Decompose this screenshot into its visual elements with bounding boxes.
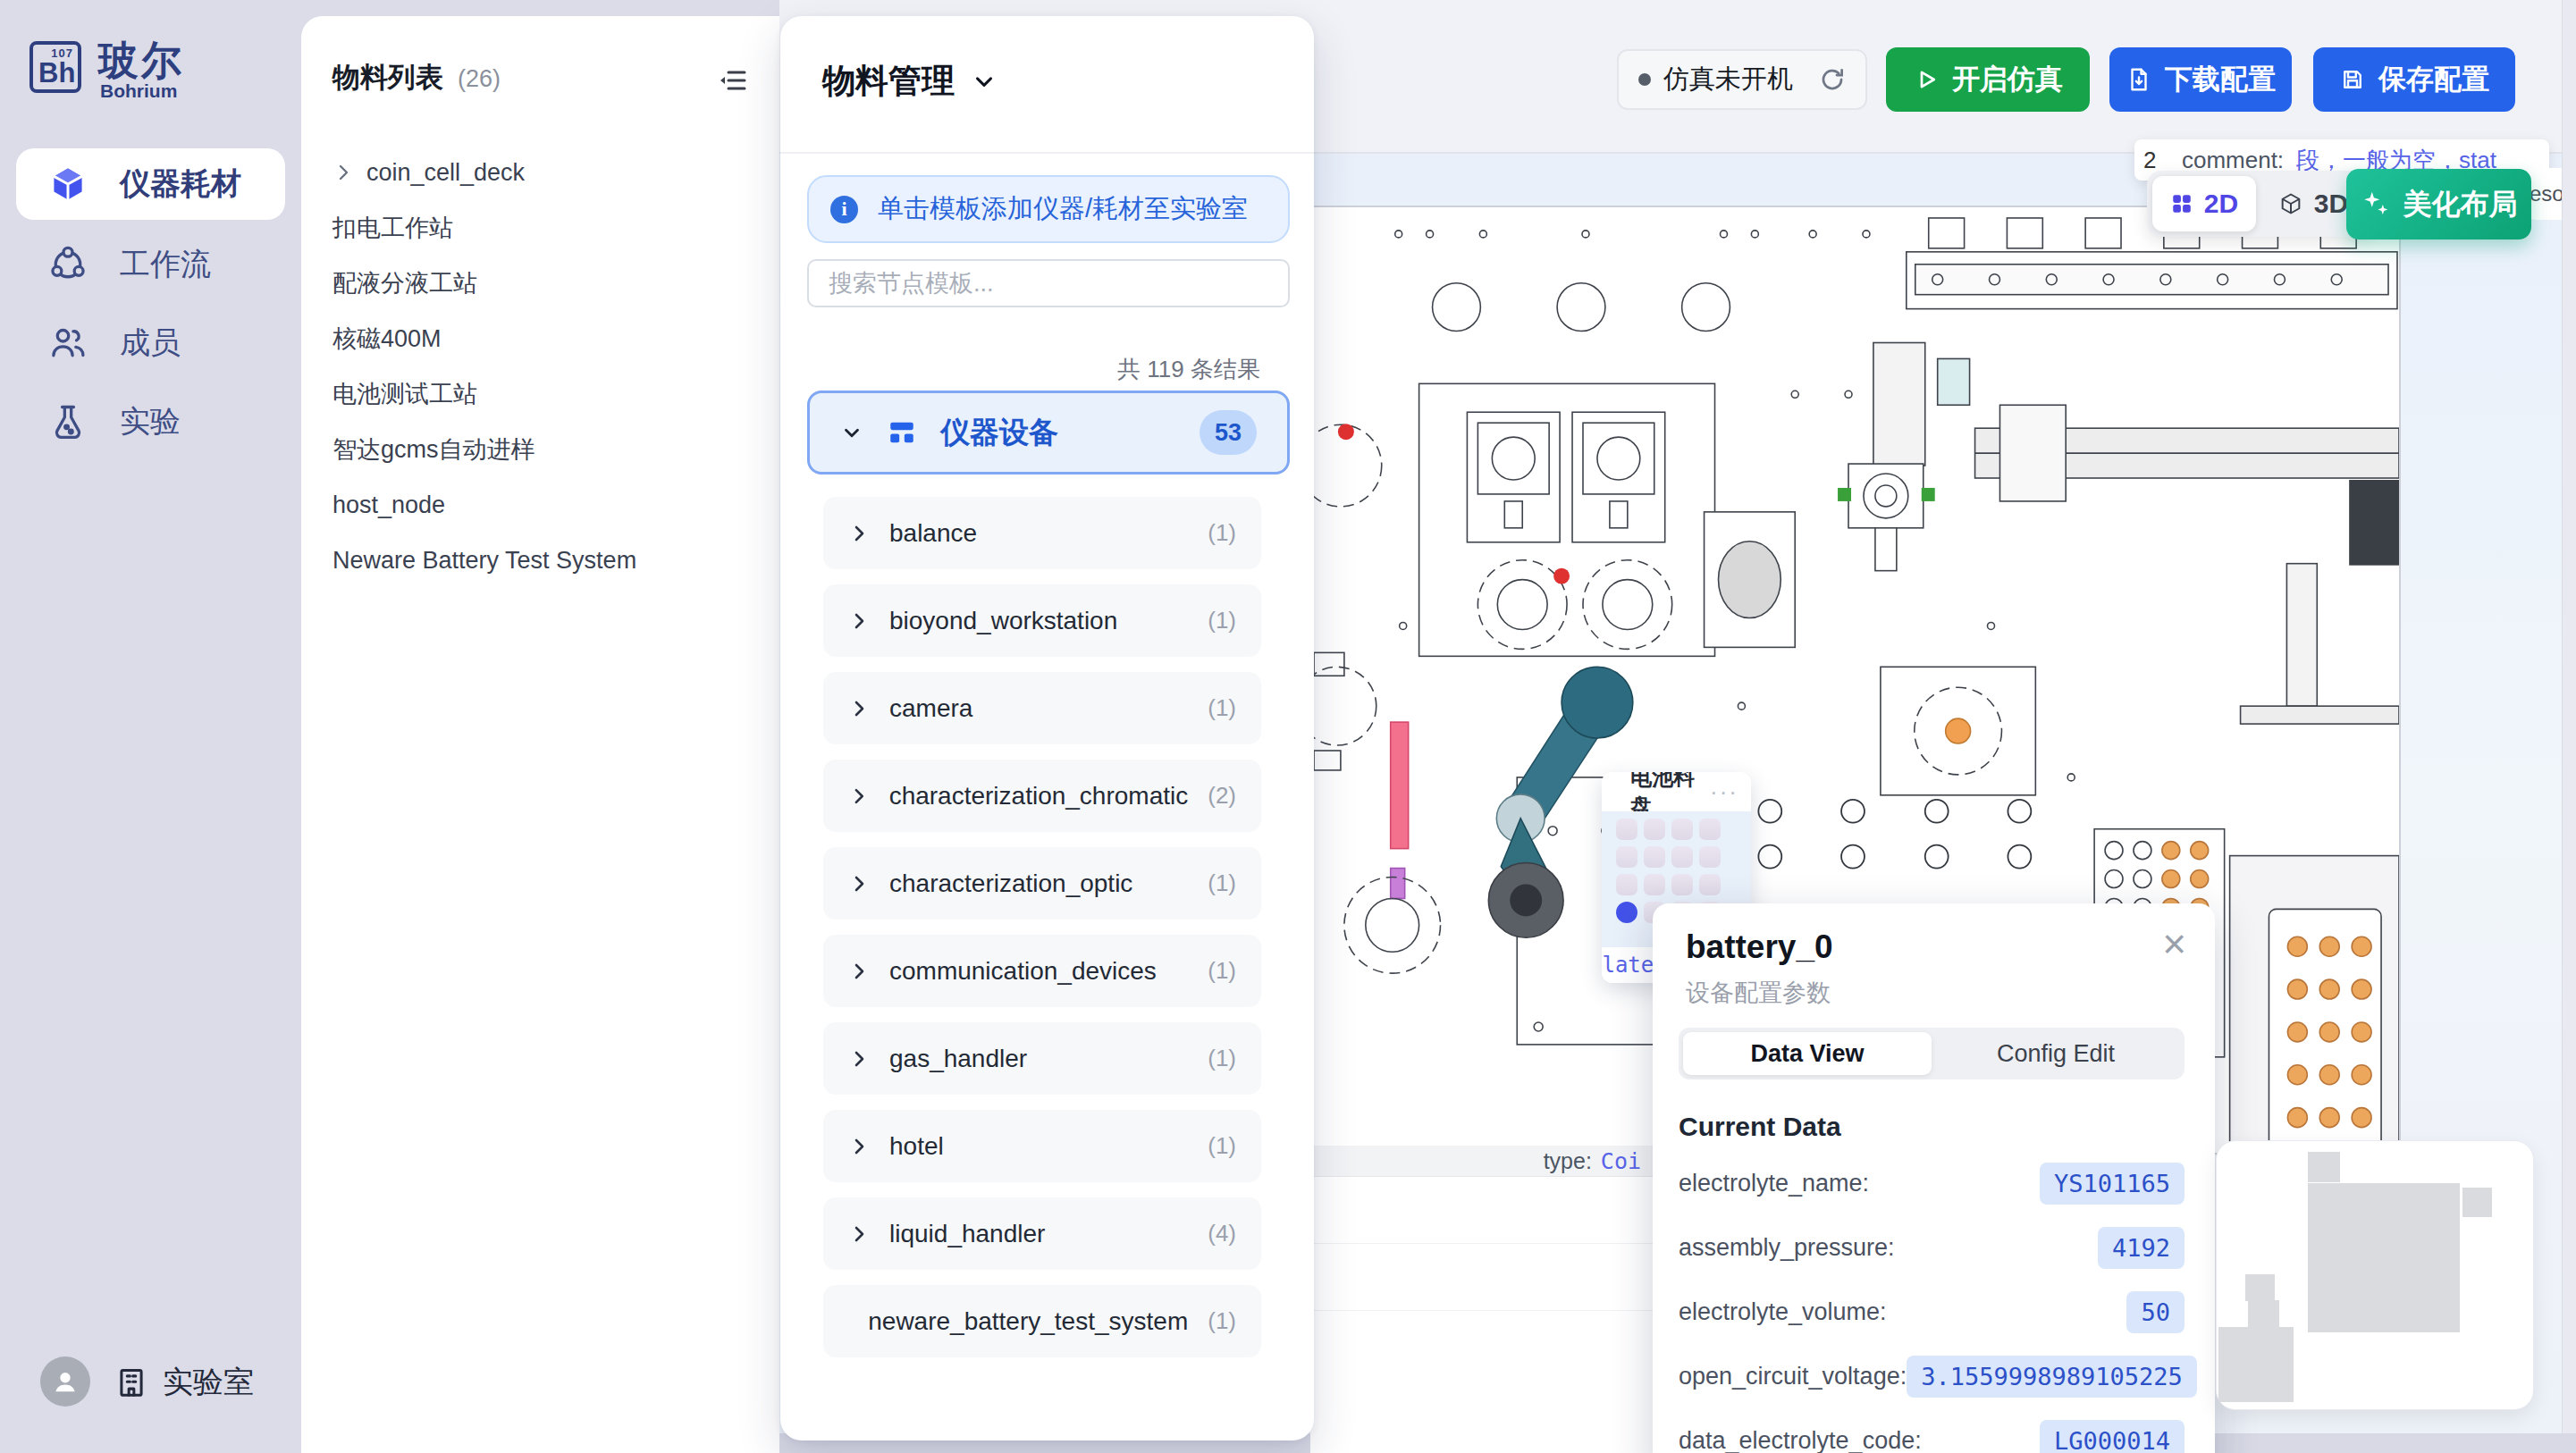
category-count-badge: 53 (1200, 410, 1257, 455)
tooltip-key: _comment: (2168, 147, 2284, 174)
popup-tabs: Data View Config Edit (1679, 1028, 2185, 1079)
battery-slot[interactable] (1644, 846, 1665, 868)
start-simulation-button[interactable]: 开启仿真 (1886, 47, 2090, 112)
current-data-heading: Current Data (1679, 1112, 1841, 1142)
tree-item[interactable]: host_node (333, 477, 758, 533)
sparkles-icon (2361, 189, 2391, 220)
minimap-block (2245, 1274, 2275, 1301)
search-input[interactable] (807, 259, 1290, 307)
battery-slot[interactable] (1616, 846, 1637, 868)
minimap-block (2308, 1152, 2340, 1182)
status-label: 仿真未开机 (1663, 62, 1793, 97)
battery-slot[interactable] (1671, 819, 1693, 840)
status-dot-icon (1638, 73, 1651, 86)
workflow-icon (48, 245, 88, 284)
cube-3d-icon (2278, 191, 2303, 216)
popup-title: battery_0 (1686, 928, 1833, 966)
node-type-row: type: Coi (1310, 1146, 1654, 1177)
sidebar-item-members[interactable]: 成员 (16, 307, 285, 379)
chevron-right-icon[interactable] (848, 698, 870, 719)
sidebar-item-workflow[interactable]: 工作流 (16, 229, 285, 300)
result-count: 共 119 条结果 (1117, 354, 1260, 385)
template-item-label: communication_devices (889, 957, 1157, 986)
minimap[interactable] (2216, 1140, 2534, 1410)
sidebar-item-label: 实验 (120, 401, 181, 442)
tree-item-label: 电池测试工站 (333, 378, 477, 410)
chevron-right-icon[interactable] (848, 1048, 870, 1070)
laboratory-label: 实验室 (163, 1362, 254, 1403)
minimap-block (2462, 1188, 2492, 1217)
chevron-right-icon[interactable] (848, 610, 870, 632)
bohrium-logo: 107 Bh (29, 41, 81, 93)
battery-config-popup: battery_0 设备配置参数 × Data View Config Edit… (1653, 903, 2215, 1453)
template-item-label: balance (889, 519, 977, 548)
data-row-label: data_electrolyte_code: (1679, 1427, 1922, 1453)
app-window: 2 _comment: 段，一般为空，stat esou 2D 3D (0, 0, 2576, 1453)
minimap-block (2218, 1327, 2294, 1402)
battery-slot[interactable] (1671, 846, 1693, 868)
chevron-right-icon[interactable] (848, 961, 870, 982)
equipment-grid-icon (887, 417, 917, 448)
start-simulation-label: 开启仿真 (1952, 61, 2063, 98)
tree-item[interactable]: 电池测试工站 (333, 366, 758, 422)
template-item-count: (1) (1208, 1132, 1236, 1160)
template-item-list: balance (1) bioyond_workstation (1) came… (823, 497, 1261, 1373)
template-item-label: characterization_chromatic (889, 782, 1189, 810)
template-panel-header[interactable]: 物料管理 (822, 59, 998, 104)
data-row-value: LG000014 (2040, 1420, 2185, 1453)
template-item[interactable]: communication_devices (1) (823, 935, 1261, 1007)
template-item[interactable]: characterization_chromatic (2) (823, 760, 1261, 832)
template-panel: 物料管理 i 单击模板添加仪器/耗材至实验室 共 119 条结果 仪器设备 53… (780, 16, 1314, 1440)
template-item-label: bioyond_workstation (889, 607, 1117, 635)
divider (780, 152, 1314, 154)
data-row: electrolyte_volume: 50 (1679, 1280, 2185, 1344)
grid-2d-icon (2170, 192, 2193, 215)
battery-slot[interactable] (1699, 874, 1721, 895)
battery-slot[interactable] (1616, 874, 1637, 895)
simulation-status[interactable]: 仿真未开机 (1617, 49, 1867, 110)
tree-item[interactable]: Neware Battery Test System (333, 533, 758, 588)
battery-tray-header: 电池料盘 ··· (1602, 772, 1751, 811)
template-item-count: (1) (1208, 869, 1236, 897)
template-item-count: (1) (1208, 957, 1236, 985)
tree-item-label: Neware Battery Test System (333, 547, 636, 575)
minimap-block (2248, 1300, 2279, 1327)
sidebar-item-experiments[interactable]: 实验 (16, 386, 285, 458)
download-file-icon (2126, 66, 2152, 93)
tree-item-label: host_node (333, 491, 445, 519)
popup-subtitle: 设备配置参数 (1686, 977, 1831, 1009)
save-config-button[interactable]: 保存配置 (2313, 47, 2515, 112)
template-item[interactable]: camera (1) (823, 672, 1261, 744)
chevron-right-icon[interactable] (848, 1223, 870, 1245)
template-item-label: camera (889, 694, 972, 723)
laboratory-building-icon (114, 1365, 148, 1399)
type-key: type: (1544, 1148, 1592, 1174)
download-config-label: 下载配置 (2165, 61, 2276, 98)
tree-item-label: 核磁400M (333, 323, 442, 355)
battery-slot[interactable] (1616, 819, 1637, 840)
logo-symbol: Bh (38, 57, 75, 89)
battery-slot[interactable] (1699, 819, 1721, 840)
popup-data-rows: electrolyte_name: YS101165 assembly_pres… (1679, 1151, 2185, 1453)
hint-banner: i 单击模板添加仪器/耗材至实验室 (807, 175, 1290, 243)
clipped-edge-text: esou (2530, 168, 2562, 220)
tab-data-view[interactable]: Data View (1683, 1032, 1932, 1075)
data-row-label: electrolyte_name: (1679, 1170, 1869, 1197)
template-item[interactable]: gas_handler (1) (823, 1022, 1261, 1095)
type-value: Coi (1601, 1148, 1641, 1174)
data-row: data_electrolyte_code: LG000014 (1679, 1408, 2185, 1453)
data-row-label: open_circuit_voltage: (1679, 1363, 1907, 1390)
template-item-count: (1) (1208, 519, 1236, 547)
download-config-button[interactable]: 下载配置 (2109, 47, 2292, 112)
battery-slot[interactable] (1644, 819, 1665, 840)
template-item[interactable]: liquid_handler (4) (823, 1197, 1261, 1270)
tree-item[interactable]: 核磁400M (333, 311, 758, 366)
template-item-count: (2) (1208, 782, 1236, 810)
template-item-count: (1) (1208, 607, 1236, 634)
edge-text: esou (2530, 181, 2562, 206)
toggle-2d[interactable]: 2D (2152, 176, 2256, 231)
data-row: electrolyte_name: YS101165 (1679, 1151, 2185, 1215)
tree-item[interactable]: 扣电工作站 (333, 200, 758, 256)
tree-item-label: 智达gcms自动进样 (333, 433, 535, 466)
close-icon[interactable]: × (2162, 923, 2186, 964)
minimap-block (2308, 1183, 2460, 1332)
template-item[interactable]: hotel (1) (823, 1110, 1261, 1182)
template-item[interactable]: neware_battery_test_system (1) (823, 1285, 1261, 1357)
brand-name-cn: 玻尔 (98, 34, 184, 88)
chevron-right-icon[interactable] (848, 1136, 870, 1157)
battery-slot[interactable] (1644, 874, 1665, 895)
category-equipment[interactable]: 仪器设备 53 (807, 391, 1290, 475)
template-item-label: neware_battery_test_system (868, 1307, 1188, 1336)
data-row-value: 4192 (2098, 1227, 2185, 1269)
data-row-value: 3.1559998989105225 (1907, 1356, 2197, 1398)
tooltip-prefix: 2 (2143, 147, 2156, 174)
data-row-label: electrolyte_volume: (1679, 1298, 1887, 1326)
data-row: assembly_pressure: 4192 (1679, 1215, 2185, 1280)
tree-item-label: 配液分液工站 (333, 267, 477, 299)
tree-item-label: coin_cell_deck (366, 159, 525, 187)
divider (1310, 1243, 1654, 1244)
sidebar-item-instruments[interactable]: 仪器耗材 (16, 148, 285, 220)
play-icon (1913, 66, 1940, 93)
template-item-count: (1) (1208, 1045, 1236, 1072)
sidebar-item-label: 仪器耗材 (120, 164, 241, 205)
collapse-panel-icon[interactable] (718, 64, 750, 97)
chevron-right-icon[interactable] (848, 873, 870, 894)
hint-banner-text: 单击模板添加仪器/耗材至实验室 (878, 191, 1248, 227)
brand-name-en: Bohrium (100, 80, 177, 102)
data-row-label: assembly_pressure: (1679, 1234, 1895, 1262)
data-row: open_circuit_voltage: 3.1559998989105225 (1679, 1344, 2185, 1408)
tree-item[interactable]: coin_cell_deck (333, 145, 758, 200)
chevron-right-icon[interactable] (848, 523, 870, 544)
category-label: 仪器设备 (940, 413, 1058, 453)
template-item-label: gas_handler (889, 1045, 1027, 1073)
sidebar-item-label: 成员 (120, 323, 181, 364)
materials-tree: coin_cell_deck 扣电工作站 配液分液工站 (333, 145, 758, 588)
user-icon (50, 1366, 80, 1397)
avatar[interactable] (40, 1356, 90, 1407)
data-row-value: YS101165 (2040, 1163, 2185, 1205)
save-config-label: 保存配置 (2378, 61, 2489, 98)
page-scrollbar-gutter[interactable] (2562, 0, 2576, 1453)
template-item[interactable]: characterization_optic (1) (823, 847, 1261, 920)
sidebar-item-laboratory[interactable]: 实验室 (114, 1362, 254, 1403)
tab-config-edit[interactable]: Config Edit (1932, 1032, 2180, 1075)
refresh-icon[interactable] (1819, 66, 1846, 93)
template-item-label: liquid_handler (889, 1220, 1045, 1248)
tray-more-icon[interactable]: ··· (1710, 778, 1738, 806)
materials-list-title: 物料列表 (333, 59, 443, 97)
template-item[interactable]: balance (1) (823, 497, 1261, 569)
materials-list-panel: 物料列表 (26) coin_cell_deck (301, 16, 779, 1453)
node-info-fragment: type: Coi (1310, 1146, 1654, 1453)
beautify-layout-button[interactable]: 美化布局 (2346, 169, 2531, 239)
beautify-label: 美化布局 (2403, 185, 2518, 224)
plate-fragment-text: Plate (1602, 953, 1654, 978)
toggle-2d-label: 2D (2204, 189, 2238, 219)
materials-list-header: 物料列表 (26) (333, 59, 748, 97)
battery-slot-selected[interactable] (1616, 902, 1637, 923)
template-panel-title: 物料管理 (822, 59, 955, 104)
toggle-3d-label: 3D (2314, 189, 2348, 219)
tree-item-label: 扣电工作站 (333, 212, 453, 244)
cube-icon (48, 164, 88, 204)
data-row-value: 50 (2126, 1291, 2185, 1333)
test-tube-icon (48, 402, 88, 441)
battery-slot[interactable] (1699, 846, 1721, 868)
chevron-right-icon[interactable] (848, 785, 870, 807)
materials-list-count: (26) (458, 65, 501, 93)
chevron-right-icon[interactable] (333, 162, 366, 183)
divider (1310, 1310, 1654, 1311)
members-icon (48, 323, 88, 363)
template-item[interactable]: bioyond_workstation (1) (823, 584, 1261, 657)
battery-slot[interactable] (1671, 874, 1693, 895)
template-item-count: (1) (1208, 694, 1236, 722)
tree-item[interactable]: 配液分液工站 (333, 256, 758, 311)
tree-item[interactable]: 智达gcms自动进样 (333, 422, 758, 477)
chevron-down-icon[interactable] (971, 68, 998, 95)
save-icon (2339, 66, 2366, 93)
chevron-down-icon (840, 421, 863, 444)
sidebar-item-label: 工作流 (120, 244, 211, 285)
info-icon: i (830, 196, 858, 223)
template-item-count: (1) (1208, 1307, 1236, 1335)
template-item-count: (4) (1208, 1220, 1236, 1247)
template-item-label: hotel (889, 1132, 944, 1161)
view-mode-toggle[interactable]: 2D 3D (2147, 171, 2370, 237)
template-item-label: characterization_optic (889, 869, 1132, 898)
